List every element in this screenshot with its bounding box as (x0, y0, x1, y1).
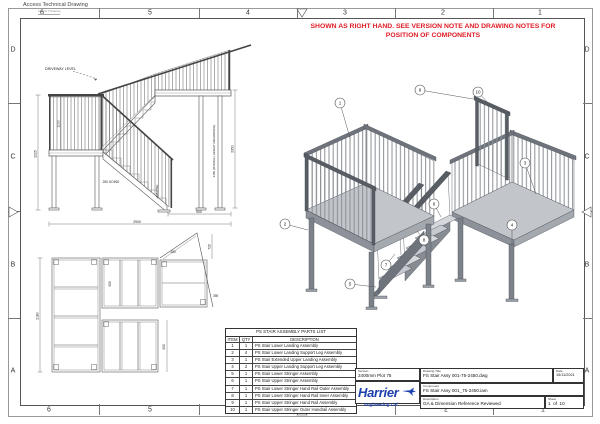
description-box: Description GA & Dimension Reference Rev… (420, 396, 545, 409)
border-row-c-r: C (584, 154, 589, 161)
balloon-9: 9 (419, 88, 422, 93)
dim-overall-height-ref: 2450 (OVERALL HEIGHT REFERENCE) (212, 125, 216, 178)
table-row: 91PS Stair Upper Stringer Hand Rail Asse… (226, 400, 356, 407)
table-row: 24PS Stair Lower Landing Support Leg Ass… (226, 350, 356, 357)
table-row: 31PS Stair Extended Upper Landing Assemb… (226, 357, 356, 364)
table-row: 71PS Stair Lower Stringer Hand Rail Oute… (226, 386, 356, 393)
balloon-5: 5 (349, 282, 352, 287)
balloon-4: 4 (511, 223, 514, 228)
logo-box: Harrier Engineering Ltd (355, 381, 420, 404)
dim-plan-ext-offset: 150 (170, 250, 176, 254)
border-col-5b: 5 (148, 407, 152, 414)
border-row-b-r: B (585, 262, 590, 269)
border-row-a: A (11, 368, 16, 375)
dim-plan-ext-edge: 390 (213, 294, 219, 298)
dim-plan-depth: 2180 (36, 312, 40, 320)
drawing-note: SHOWN AS RIGHT HAND. SEE VERSION NOTE AN… (305, 22, 561, 40)
col-description: DESCRIPTION (253, 337, 356, 343)
border-row-b: B (11, 262, 16, 269)
dim-plan-upper-width: 900 (108, 281, 112, 287)
balloon-7: 7 (385, 263, 388, 268)
border-col-3: 3 (343, 10, 347, 17)
drawing-title-box: Drawing Title FS Stair Assy 001-75-2450.… (420, 368, 553, 383)
border-row-d-r: D (584, 47, 589, 54)
border-row-a-r: A (585, 368, 590, 375)
dim-plan-ext-depth: 720 (208, 244, 212, 250)
border-col-2: 2 (441, 10, 445, 17)
jet-plane-icon (401, 387, 417, 397)
drawing-sheet: 6 5 4 3 2 1 6 5 4 3 2 1 D C B A D C B A … (0, 0, 600, 424)
component-value: FS Stair Assy 001_75-2450.iam (423, 388, 581, 394)
table-row: 51PS Stair Lower Stringer Assembly (226, 371, 356, 378)
balloon-6: 6 (433, 202, 436, 207)
border-col-6b: 6 (47, 407, 51, 414)
elevation-view: DRIVEWAY LEVEL (25, 38, 255, 233)
description-value: GA & Dimension Reference Reviewed (423, 401, 542, 407)
date-value: 15/11/2021 (556, 373, 581, 379)
border-row-c: C (10, 154, 15, 161)
border-col-1: 1 (538, 10, 542, 17)
table-row: 81PS Stair Lower Stringer Hand Rail Inne… (226, 393, 356, 400)
balloon-2: 2 (284, 222, 287, 227)
parts-list-title: PS STAIR ASSEMBLY PARTS LIST (226, 329, 356, 337)
dim-upper-height: 2350 (231, 145, 235, 153)
table-row: 61PS Stair Upper Stringer Assembly (226, 378, 356, 385)
dim-landing-width: 900 (196, 210, 202, 214)
balloon-3: 3 (524, 161, 527, 166)
table-row: 11PS Stair Lower Landing Assembly (226, 343, 356, 350)
col-item: ITEM (226, 337, 240, 343)
date-box: Date 15/11/2021 (553, 368, 584, 383)
app-header-title: Access Technical Drawing (23, 2, 88, 8)
table-row: 101PS Stair Upper Stringer Outer Handrai… (226, 407, 356, 413)
parts-list-table: PS STAIR ASSEMBLY PARTS LIST ITEM QTY DE… (225, 328, 357, 414)
dim-rise: 225 RISE (155, 185, 159, 198)
dim-overall-left: 2225 (34, 150, 38, 158)
border-row-d: D (10, 47, 15, 54)
component-box: Component FS Stair Assy 001_75-2450.iam (420, 383, 584, 396)
plan-view: 2180 900 900 720 150 390 (30, 232, 230, 402)
sheet-value: 1 of 10 (548, 401, 581, 407)
harrier-logo: Harrier (358, 385, 399, 400)
dim-going: 250 GOING (103, 180, 120, 184)
sheet-box: Sheet 1 of 10 (545, 396, 584, 409)
driveway-level-label: DRIVEWAY LEVEL (45, 67, 76, 71)
col-qty: QTY (240, 337, 253, 343)
version-value: 2400mm Plot 75 (358, 373, 417, 379)
version-box: Version 2400mm Plot 75 (355, 368, 420, 381)
dim-rail-height: 1100 (57, 120, 61, 127)
balloon-8: 8 (423, 238, 426, 243)
balloon-1: 1 (339, 101, 342, 106)
dim-overall-width: 2900 (133, 220, 141, 224)
drawing-title-value: FS Stair Assy 001-75-2450.dwg (423, 373, 550, 379)
border-col-4: 4 (246, 10, 250, 17)
dim-plan-lower-width: 900 (162, 344, 166, 350)
border-col-5: 5 (148, 10, 152, 17)
balloon-10: 10 (475, 90, 481, 95)
logo-subtitle: Engineering Ltd (364, 402, 417, 407)
app-header-subtitle: Access T Drawing (38, 9, 60, 15)
isometric-view: 1 2 3 4 5 6 7 8 9 10 (278, 58, 584, 320)
table-row: 42PS Stair Upper Landing Support Leg Ass… (226, 364, 356, 371)
